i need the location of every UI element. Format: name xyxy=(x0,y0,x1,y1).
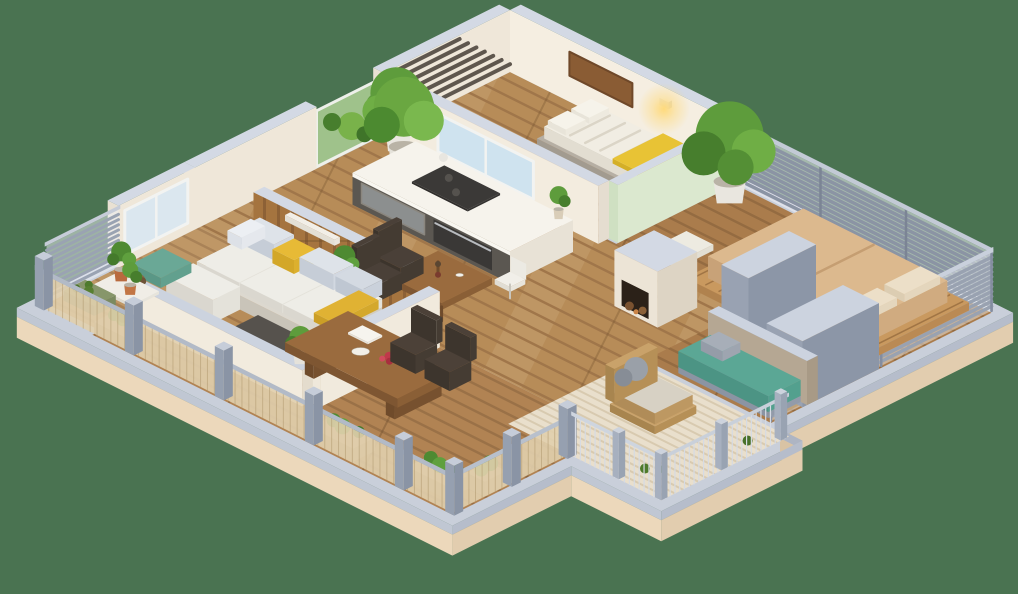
taupe-wall xyxy=(807,356,818,405)
fire-log xyxy=(639,307,647,315)
tall-potted-plant xyxy=(364,107,400,143)
counter-vase-plant xyxy=(554,207,564,211)
terrace-tree xyxy=(718,149,754,185)
rail-post xyxy=(125,301,134,356)
burner xyxy=(452,188,460,196)
rail-post xyxy=(512,432,521,487)
wire-post xyxy=(661,451,667,500)
terracotta-pot-plant xyxy=(124,283,136,288)
dark-chair-back xyxy=(470,335,476,362)
wire-post xyxy=(613,430,619,479)
fire-ember xyxy=(634,309,639,314)
cup xyxy=(456,273,464,277)
isometric-floor-plan-render xyxy=(0,0,1018,594)
tall-potted-plant xyxy=(404,101,444,141)
bottle xyxy=(435,272,441,278)
sconce-glow xyxy=(638,83,690,135)
back-cushion xyxy=(614,369,632,387)
plate xyxy=(352,347,370,355)
rail-post xyxy=(224,346,233,401)
mint-wall xyxy=(609,181,618,244)
wire-post xyxy=(722,421,728,470)
wire-post xyxy=(715,421,721,470)
rail-post xyxy=(314,391,323,446)
door-foliage xyxy=(323,113,341,131)
rail-post xyxy=(305,391,314,446)
rail-post xyxy=(454,461,463,516)
wire-post xyxy=(775,391,781,440)
counter-vase-plant xyxy=(559,195,571,207)
rail-post xyxy=(559,405,568,460)
rail-post xyxy=(395,436,404,491)
red-flowers xyxy=(379,356,385,362)
fire-log xyxy=(625,302,634,311)
dark-chair-back xyxy=(436,317,442,344)
wire-post xyxy=(619,430,625,479)
rail-post xyxy=(134,301,143,356)
terracotta-pot-plant xyxy=(130,271,142,283)
rail-post xyxy=(44,256,53,311)
wire-post xyxy=(781,391,787,440)
patio-armchair-back xyxy=(605,365,614,404)
rail-post xyxy=(215,346,224,401)
kettle xyxy=(439,153,448,162)
terracotta-pot-plant xyxy=(107,253,119,265)
floor-plan-stage xyxy=(0,0,1018,594)
rail-post xyxy=(404,436,413,491)
wire-post xyxy=(655,451,661,500)
rail-post xyxy=(35,256,44,311)
rail-post xyxy=(445,461,454,516)
bottle xyxy=(435,261,441,267)
burner xyxy=(445,174,453,182)
rail-post xyxy=(503,432,512,487)
bedroom-kitchen-wall xyxy=(598,181,609,244)
